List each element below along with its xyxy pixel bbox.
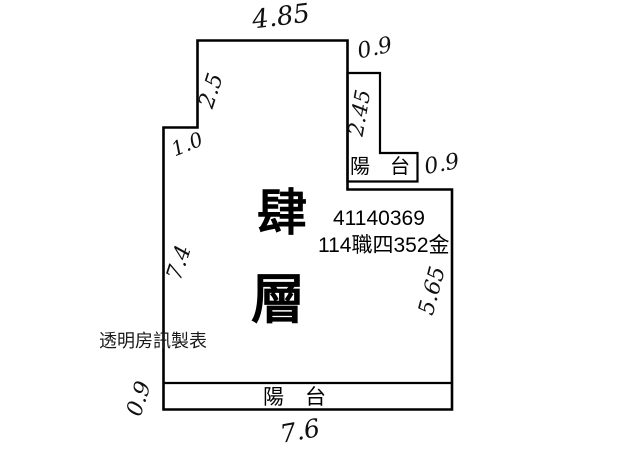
dimension-bottom-width: 7.6 — [278, 415, 322, 447]
floor-label-char-top: 肆 — [257, 188, 307, 238]
bottom-balcony-label: 陽 台 — [263, 387, 326, 408]
floor-label-char-bottom: 層 — [251, 273, 305, 327]
doc-code: 114職四352金 — [318, 235, 450, 256]
dimension-top-width: 4.85 — [251, 1, 312, 34]
top-balcony-label: 陽 台 — [350, 157, 410, 177]
floorplan-canvas: 4.85 0.9 2.5 1.0 2.45 0.9 7.4 5.65 0.9 7… — [0, 0, 617, 461]
dimension-top-balcony-width: 0.9 — [423, 151, 461, 179]
watermark: 透明房訊製表 — [99, 332, 207, 350]
license-number: 41140369 — [333, 208, 425, 229]
